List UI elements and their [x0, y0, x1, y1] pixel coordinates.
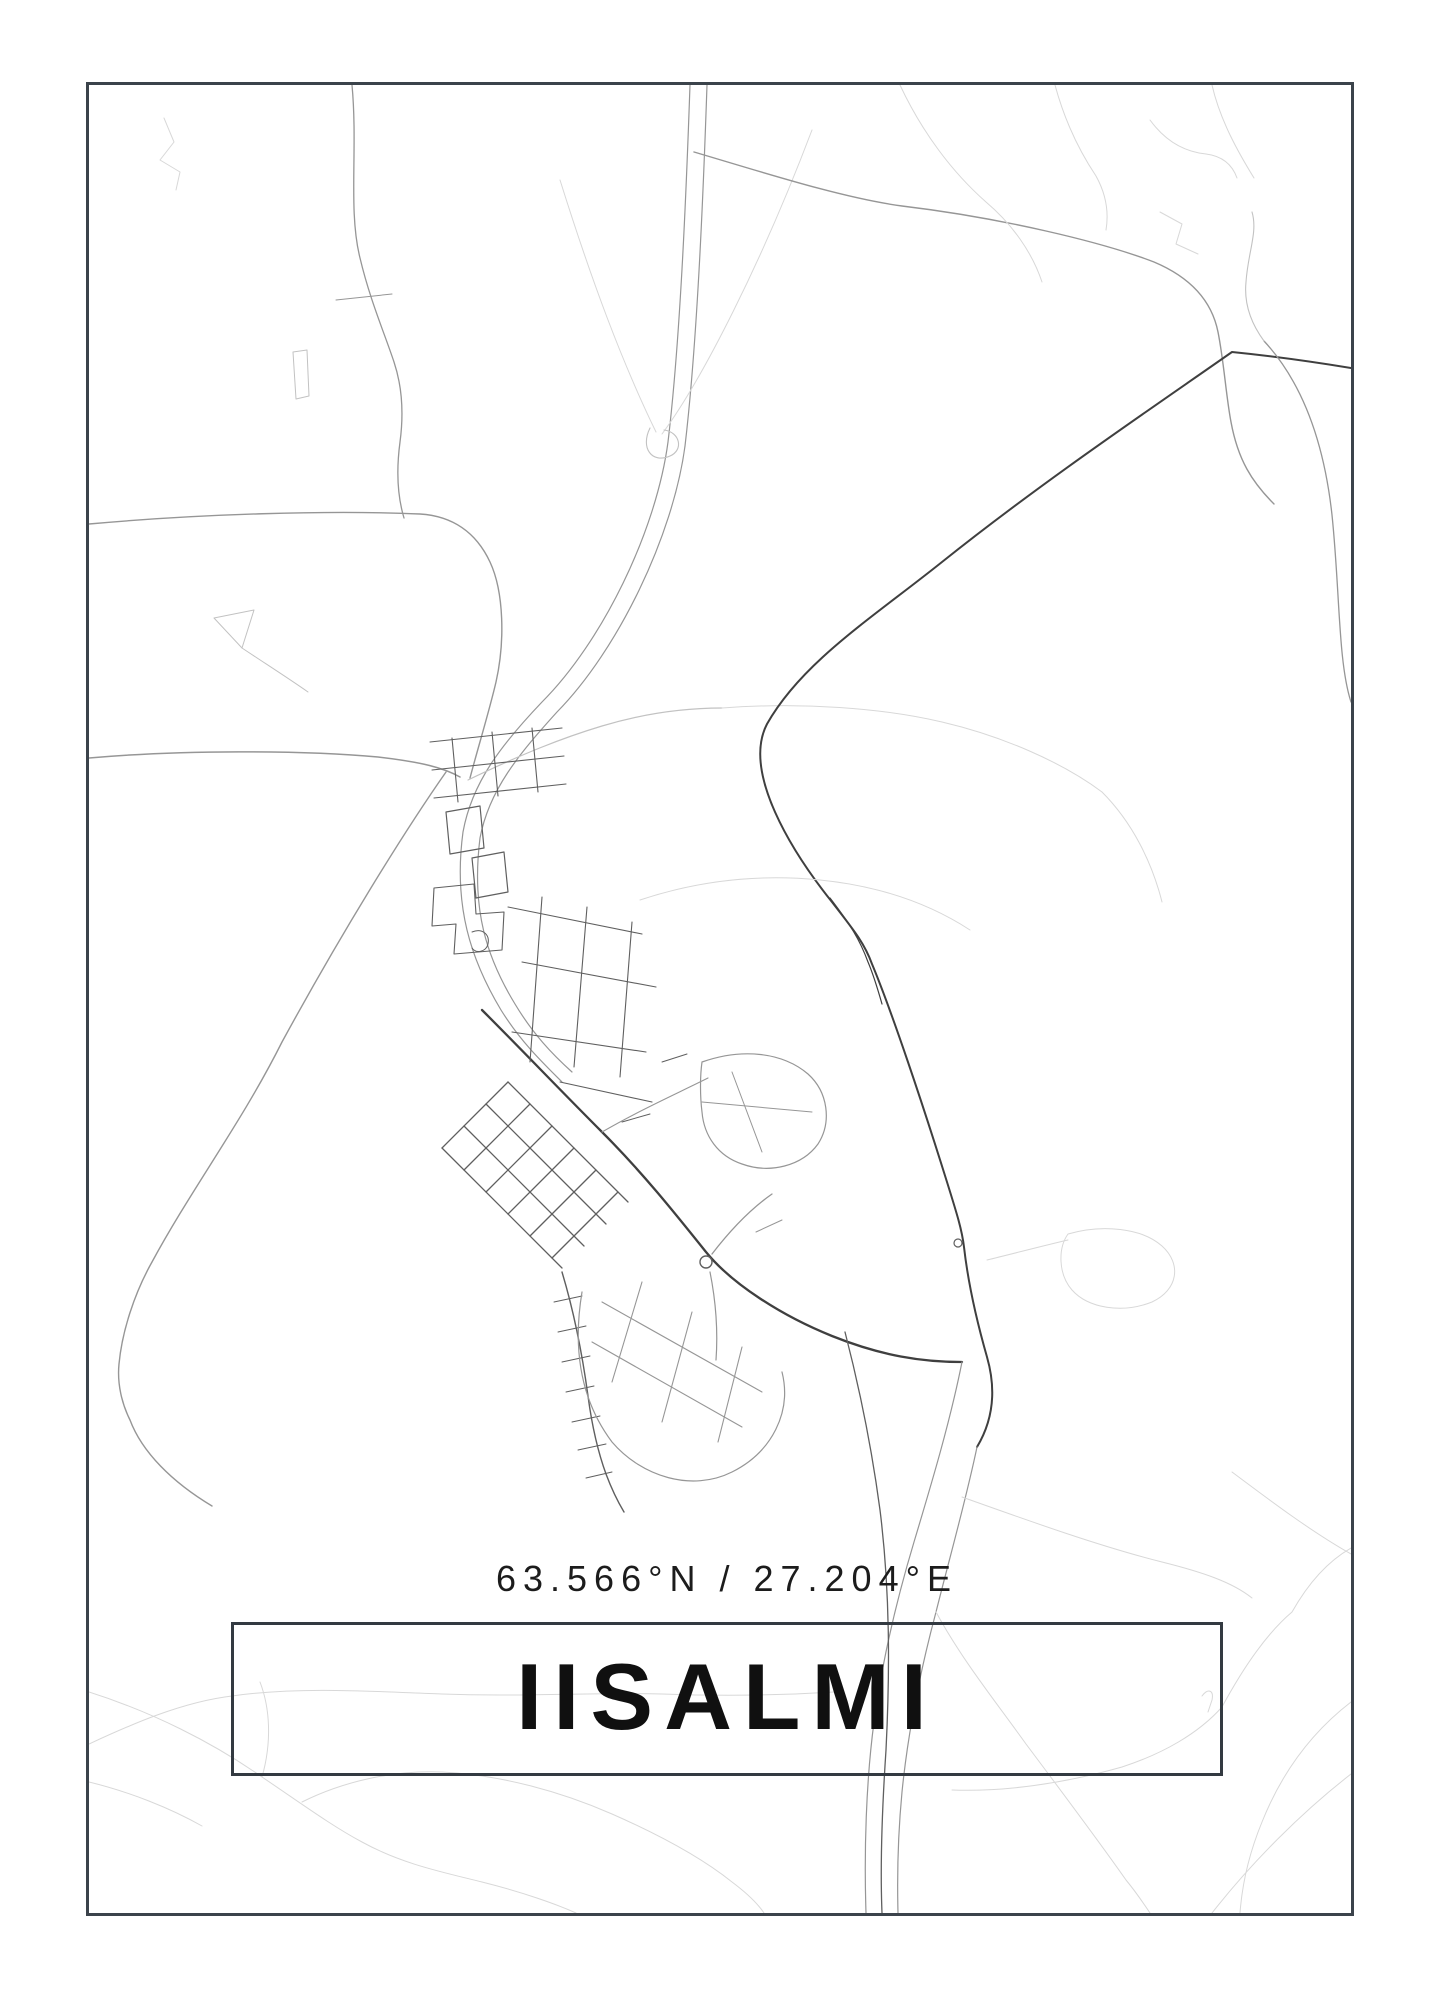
title-box: IISALMI: [231, 1622, 1223, 1776]
city-title: IISALMI: [516, 1650, 938, 1744]
coordinates-label: 63.566°N / 27.204°E: [231, 1558, 1223, 1600]
